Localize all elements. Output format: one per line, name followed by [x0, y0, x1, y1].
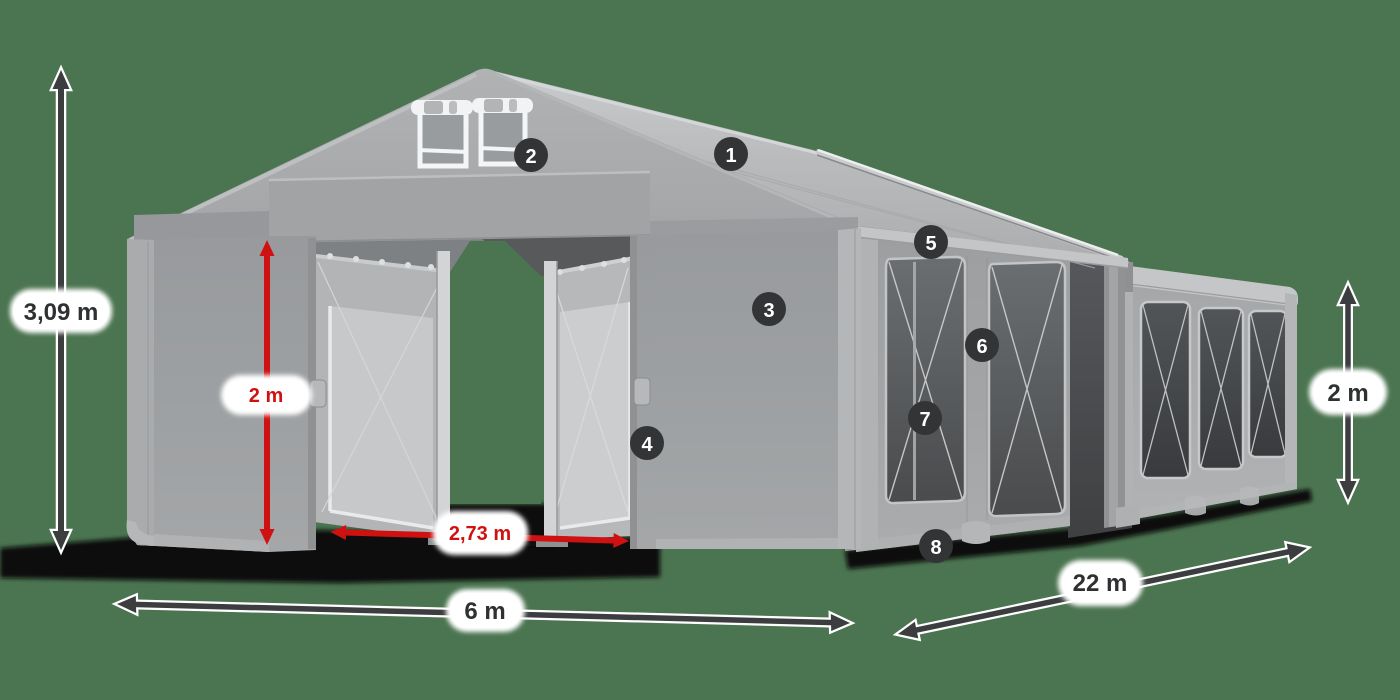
svg-text:4: 4 — [641, 434, 653, 456]
svg-text:2: 2 — [525, 146, 536, 168]
svg-text:6: 6 — [976, 336, 987, 358]
svg-text:3,09 m: 3,09 m — [24, 299, 99, 326]
svg-text:6 m: 6 m — [464, 598, 505, 625]
svg-text:22 m: 22 m — [1073, 570, 1128, 597]
svg-text:7: 7 — [919, 409, 930, 431]
svg-text:2 m: 2 m — [249, 385, 283, 407]
svg-text:1: 1 — [725, 145, 736, 167]
svg-text:5: 5 — [925, 233, 936, 255]
svg-text:2 m: 2 m — [1327, 380, 1368, 407]
svg-text:3: 3 — [763, 300, 774, 322]
svg-text:8: 8 — [930, 537, 941, 559]
svg-text:2,73 m: 2,73 m — [449, 523, 511, 545]
